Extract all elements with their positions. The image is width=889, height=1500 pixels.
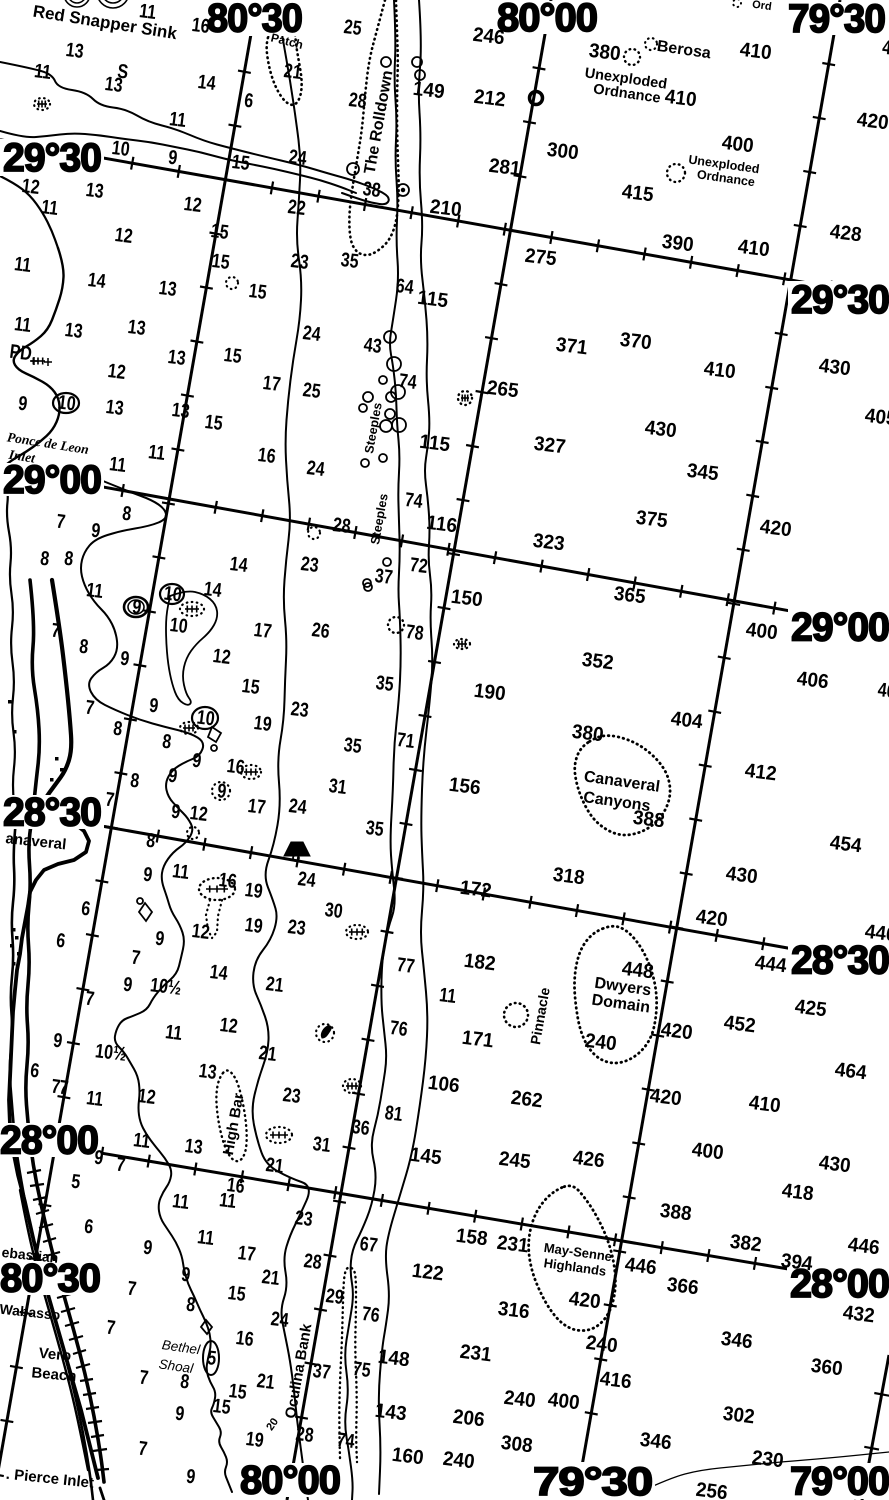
svg-text:346: 346 xyxy=(639,1428,673,1454)
svg-text:13: 13 xyxy=(167,345,187,369)
svg-text:79°30: 79°30 xyxy=(533,1460,652,1500)
svg-text:116: 116 xyxy=(425,511,458,537)
svg-text:23: 23 xyxy=(287,915,307,939)
svg-text:400: 400 xyxy=(547,1388,581,1414)
svg-text:115: 115 xyxy=(418,430,451,456)
svg-text:366: 366 xyxy=(666,1273,700,1299)
svg-text:19: 19 xyxy=(245,1427,265,1451)
svg-text:13: 13 xyxy=(158,276,178,300)
svg-text:420: 420 xyxy=(856,108,889,134)
svg-text:300: 300 xyxy=(546,138,580,164)
svg-text:375: 375 xyxy=(635,506,669,532)
svg-text:160: 160 xyxy=(391,1443,425,1469)
svg-text:206: 206 xyxy=(452,1405,486,1431)
svg-text:122: 122 xyxy=(411,1259,445,1285)
svg-text:318: 318 xyxy=(552,863,586,889)
svg-text:388: 388 xyxy=(659,1199,693,1225)
svg-text:11: 11 xyxy=(218,1188,237,1212)
svg-text:80°00: 80°00 xyxy=(497,0,597,40)
svg-text:327: 327 xyxy=(533,432,567,458)
svg-text:17: 17 xyxy=(253,618,273,642)
svg-text:10: 10 xyxy=(169,613,189,637)
svg-text:14: 14 xyxy=(197,70,217,94)
svg-text:11: 11 xyxy=(40,195,59,219)
svg-text:428: 428 xyxy=(829,220,863,246)
svg-text:182: 182 xyxy=(463,949,497,975)
svg-text:12: 12 xyxy=(189,801,209,825)
svg-text:394: 394 xyxy=(780,1249,814,1275)
svg-text:64: 64 xyxy=(395,274,415,298)
svg-text:11: 11 xyxy=(85,578,104,602)
svg-text:246: 246 xyxy=(472,23,506,49)
svg-text:22: 22 xyxy=(287,195,307,219)
svg-text:19: 19 xyxy=(244,913,264,937)
svg-text:10: 10 xyxy=(111,136,131,160)
svg-text:171: 171 xyxy=(461,1026,495,1052)
svg-text:31: 31 xyxy=(328,774,348,798)
svg-text:72: 72 xyxy=(409,553,429,577)
svg-text:28°00: 28°00 xyxy=(0,1119,98,1163)
svg-text:15: 15 xyxy=(204,410,224,434)
svg-text:23: 23 xyxy=(290,697,310,721)
svg-text:245: 245 xyxy=(498,1147,532,1173)
svg-text:454: 454 xyxy=(829,831,863,857)
svg-text:29°30: 29°30 xyxy=(791,278,889,322)
svg-text:28: 28 xyxy=(303,1249,323,1273)
svg-text:12: 12 xyxy=(137,1084,157,1108)
svg-text:10½: 10½ xyxy=(149,974,183,1000)
svg-text:380: 380 xyxy=(588,39,622,65)
svg-text:13: 13 xyxy=(85,178,105,202)
svg-text:11: 11 xyxy=(33,59,52,83)
svg-text:418: 418 xyxy=(781,1179,815,1205)
svg-text:316: 316 xyxy=(497,1297,531,1323)
svg-text:345: 345 xyxy=(686,459,720,485)
svg-text:415: 415 xyxy=(621,180,655,206)
svg-text:24: 24 xyxy=(288,145,308,169)
svg-text:400: 400 xyxy=(721,131,755,157)
svg-text:416: 416 xyxy=(599,1367,633,1393)
svg-text:28: 28 xyxy=(332,513,352,537)
svg-text:35: 35 xyxy=(343,733,363,757)
svg-text:77: 77 xyxy=(396,953,416,977)
svg-text:346: 346 xyxy=(720,1327,754,1353)
svg-text:13: 13 xyxy=(104,72,124,96)
svg-text:452: 452 xyxy=(723,1011,757,1037)
svg-text:400: 400 xyxy=(691,1138,725,1164)
svg-text:16: 16 xyxy=(226,754,246,778)
svg-text:432: 432 xyxy=(842,1301,876,1327)
svg-text:420: 420 xyxy=(759,515,793,541)
svg-text:13: 13 xyxy=(64,318,84,342)
svg-text:16: 16 xyxy=(191,13,211,37)
svg-text:390: 390 xyxy=(661,230,695,256)
svg-text:172: 172 xyxy=(459,876,493,902)
svg-text:13: 13 xyxy=(184,1134,204,1158)
svg-text:352: 352 xyxy=(581,648,615,674)
svg-text:430: 430 xyxy=(818,1151,852,1177)
svg-text:11: 11 xyxy=(196,1225,215,1249)
svg-text:365: 365 xyxy=(613,582,647,608)
svg-text:212: 212 xyxy=(473,85,507,111)
svg-text:15: 15 xyxy=(248,279,268,303)
svg-text:410: 410 xyxy=(737,235,771,261)
svg-text:11: 11 xyxy=(108,452,127,476)
svg-text:412: 412 xyxy=(744,759,778,785)
svg-text:420: 420 xyxy=(695,905,729,931)
svg-text:29°00: 29°00 xyxy=(3,458,101,502)
svg-text:420: 420 xyxy=(568,1287,602,1313)
svg-text:11: 11 xyxy=(13,312,32,336)
svg-text:15: 15 xyxy=(227,1281,247,1305)
svg-text:11: 11 xyxy=(168,107,187,131)
svg-text:10: 10 xyxy=(163,582,183,606)
svg-text:10: 10 xyxy=(57,391,77,415)
svg-text:38: 38 xyxy=(362,177,382,201)
svg-text:281: 281 xyxy=(488,154,522,180)
svg-text:13: 13 xyxy=(105,395,125,419)
svg-text:21: 21 xyxy=(283,59,303,83)
svg-text:28°30: 28°30 xyxy=(791,939,889,983)
svg-text:11: 11 xyxy=(438,983,457,1007)
svg-text:446: 446 xyxy=(624,1253,658,1279)
svg-text:256: 256 xyxy=(695,1478,729,1500)
svg-text:240: 240 xyxy=(585,1331,619,1357)
svg-text:24: 24 xyxy=(306,456,326,480)
svg-text:30: 30 xyxy=(324,898,344,922)
svg-text:79°30: 79°30 xyxy=(788,0,885,41)
svg-text:12: 12 xyxy=(183,192,203,216)
svg-text:21: 21 xyxy=(265,972,285,996)
svg-text:13: 13 xyxy=(127,315,147,339)
svg-text:12: 12 xyxy=(191,919,211,943)
svg-text:148: 148 xyxy=(377,1345,411,1371)
svg-text:430: 430 xyxy=(818,354,852,380)
svg-text:406: 406 xyxy=(796,667,830,693)
svg-text:21: 21 xyxy=(256,1369,276,1393)
svg-text:11: 11 xyxy=(171,859,190,883)
svg-text:405: 405 xyxy=(864,404,889,430)
svg-text:262: 262 xyxy=(510,1086,544,1112)
svg-text:37: 37 xyxy=(374,564,394,588)
svg-text:11: 11 xyxy=(171,1189,190,1213)
svg-text:420: 420 xyxy=(660,1018,694,1044)
svg-text:80°00: 80°00 xyxy=(240,1459,340,1500)
svg-text:150: 150 xyxy=(450,585,484,611)
svg-text:302: 302 xyxy=(722,1402,756,1428)
svg-text:12: 12 xyxy=(219,1013,239,1037)
svg-text:12: 12 xyxy=(212,644,232,668)
svg-text:382: 382 xyxy=(729,1230,763,1256)
svg-text:23: 23 xyxy=(300,552,320,576)
svg-text:25: 25 xyxy=(302,378,322,402)
svg-text:74: 74 xyxy=(404,488,424,512)
svg-text:26: 26 xyxy=(311,618,331,642)
svg-text:14: 14 xyxy=(87,268,107,292)
svg-text:10: 10 xyxy=(196,706,216,730)
svg-text:24: 24 xyxy=(297,867,317,891)
svg-text:29°00: 29°00 xyxy=(791,606,889,650)
svg-text:28°30: 28°30 xyxy=(3,791,101,835)
svg-text:158: 158 xyxy=(455,1224,489,1250)
svg-text:36: 36 xyxy=(351,1115,371,1139)
svg-text:404: 404 xyxy=(670,707,704,733)
svg-text:13: 13 xyxy=(171,398,191,422)
svg-text:29°30: 29°30 xyxy=(3,136,101,180)
svg-text:426: 426 xyxy=(572,1146,606,1172)
svg-text:76: 76 xyxy=(361,1302,381,1326)
svg-text:12: 12 xyxy=(107,359,127,383)
svg-text:240: 240 xyxy=(584,1029,618,1055)
svg-text:410: 410 xyxy=(748,1091,782,1117)
svg-text:265: 265 xyxy=(486,376,520,402)
svg-text:11: 11 xyxy=(85,1086,104,1110)
svg-text:15: 15 xyxy=(210,219,230,243)
svg-text:40: 40 xyxy=(877,678,889,702)
svg-text:380: 380 xyxy=(571,720,605,746)
svg-text:240: 240 xyxy=(442,1447,476,1473)
svg-text:143: 143 xyxy=(374,1399,408,1425)
svg-text:11: 11 xyxy=(164,1020,183,1044)
svg-text:10½: 10½ xyxy=(94,1040,128,1066)
svg-text:28: 28 xyxy=(348,88,368,112)
svg-text:410: 410 xyxy=(739,38,773,64)
svg-text:420: 420 xyxy=(649,1084,683,1110)
svg-text:13: 13 xyxy=(65,38,85,62)
svg-text:21: 21 xyxy=(261,1265,281,1289)
svg-text:16: 16 xyxy=(218,868,238,892)
svg-text:35: 35 xyxy=(365,816,385,840)
svg-text:430: 430 xyxy=(725,862,759,888)
svg-text:35: 35 xyxy=(340,248,360,272)
svg-text:15: 15 xyxy=(241,674,261,698)
svg-text:231: 231 xyxy=(459,1340,493,1366)
svg-text:190: 190 xyxy=(473,679,507,705)
svg-text:25: 25 xyxy=(343,15,363,39)
svg-text:23: 23 xyxy=(294,1206,314,1230)
svg-text:230: 230 xyxy=(751,1446,785,1472)
svg-text:210: 210 xyxy=(429,195,463,221)
svg-text:78: 78 xyxy=(405,620,425,644)
svg-text:14: 14 xyxy=(203,577,223,601)
svg-text:17: 17 xyxy=(247,794,267,818)
svg-text:17: 17 xyxy=(237,1241,257,1265)
svg-text:13: 13 xyxy=(198,1059,218,1083)
svg-text:74: 74 xyxy=(336,1428,356,1452)
svg-text:76: 76 xyxy=(389,1016,409,1040)
svg-text:323: 323 xyxy=(532,529,566,555)
svg-text:24: 24 xyxy=(270,1307,290,1331)
svg-text:75: 75 xyxy=(352,1357,372,1381)
svg-text:15: 15 xyxy=(223,343,243,367)
svg-text:Vero: Vero xyxy=(38,1345,72,1365)
svg-text:464: 464 xyxy=(834,1058,868,1084)
svg-text:23: 23 xyxy=(282,1083,302,1107)
svg-text:81: 81 xyxy=(384,1101,404,1125)
svg-text:PD: PD xyxy=(8,340,33,365)
svg-text:360: 360 xyxy=(810,1354,844,1380)
svg-text:21: 21 xyxy=(258,1041,278,1065)
svg-text:15: 15 xyxy=(211,249,231,273)
svg-text:370: 370 xyxy=(619,328,653,354)
svg-text:19: 19 xyxy=(244,878,264,902)
svg-text:371: 371 xyxy=(555,333,589,359)
svg-text:425: 425 xyxy=(794,995,828,1021)
svg-text:37: 37 xyxy=(312,1359,332,1383)
svg-text:19: 19 xyxy=(253,711,273,735)
svg-text:17: 17 xyxy=(262,371,282,395)
svg-text:12: 12 xyxy=(114,223,134,247)
svg-text:440: 440 xyxy=(864,920,889,946)
svg-text:308: 308 xyxy=(500,1431,534,1457)
svg-text:35: 35 xyxy=(375,671,395,695)
svg-text:240: 240 xyxy=(503,1386,537,1412)
svg-text:24: 24 xyxy=(288,794,308,818)
svg-text:400: 400 xyxy=(745,618,779,644)
svg-text:275: 275 xyxy=(524,244,558,270)
svg-text:11: 11 xyxy=(13,252,32,276)
svg-text:21: 21 xyxy=(265,1153,285,1177)
svg-text:145: 145 xyxy=(409,1143,443,1169)
svg-text:430: 430 xyxy=(644,416,678,442)
svg-text:15: 15 xyxy=(212,1394,232,1418)
svg-text:410: 410 xyxy=(703,357,737,383)
svg-text:79°00: 79°00 xyxy=(790,1460,889,1500)
svg-text:16: 16 xyxy=(257,443,277,467)
svg-text:67: 67 xyxy=(359,1232,379,1256)
svg-text:444: 444 xyxy=(754,951,788,977)
svg-text:15: 15 xyxy=(231,150,251,174)
svg-text:16: 16 xyxy=(235,1326,255,1350)
svg-text:28: 28 xyxy=(295,1422,315,1446)
svg-text:74: 74 xyxy=(398,369,418,393)
svg-text:43: 43 xyxy=(363,333,383,357)
svg-text:446: 446 xyxy=(847,1233,881,1259)
svg-text:11: 11 xyxy=(147,440,166,464)
svg-text:29: 29 xyxy=(325,1284,345,1308)
svg-text:23: 23 xyxy=(290,249,310,273)
svg-text:31: 31 xyxy=(312,1132,332,1156)
svg-text:156: 156 xyxy=(448,773,482,799)
svg-text:106: 106 xyxy=(427,1071,461,1097)
svg-text:11: 11 xyxy=(132,1128,151,1152)
svg-text:231: 231 xyxy=(496,1231,530,1257)
svg-text:71: 71 xyxy=(396,728,416,752)
svg-text:14: 14 xyxy=(209,960,229,984)
svg-text:410: 410 xyxy=(664,85,698,111)
svg-text:115: 115 xyxy=(416,286,449,312)
svg-text:24: 24 xyxy=(302,321,322,345)
svg-text:14: 14 xyxy=(229,552,249,576)
svg-text:149: 149 xyxy=(412,77,446,103)
svg-text:12: 12 xyxy=(21,174,41,198)
